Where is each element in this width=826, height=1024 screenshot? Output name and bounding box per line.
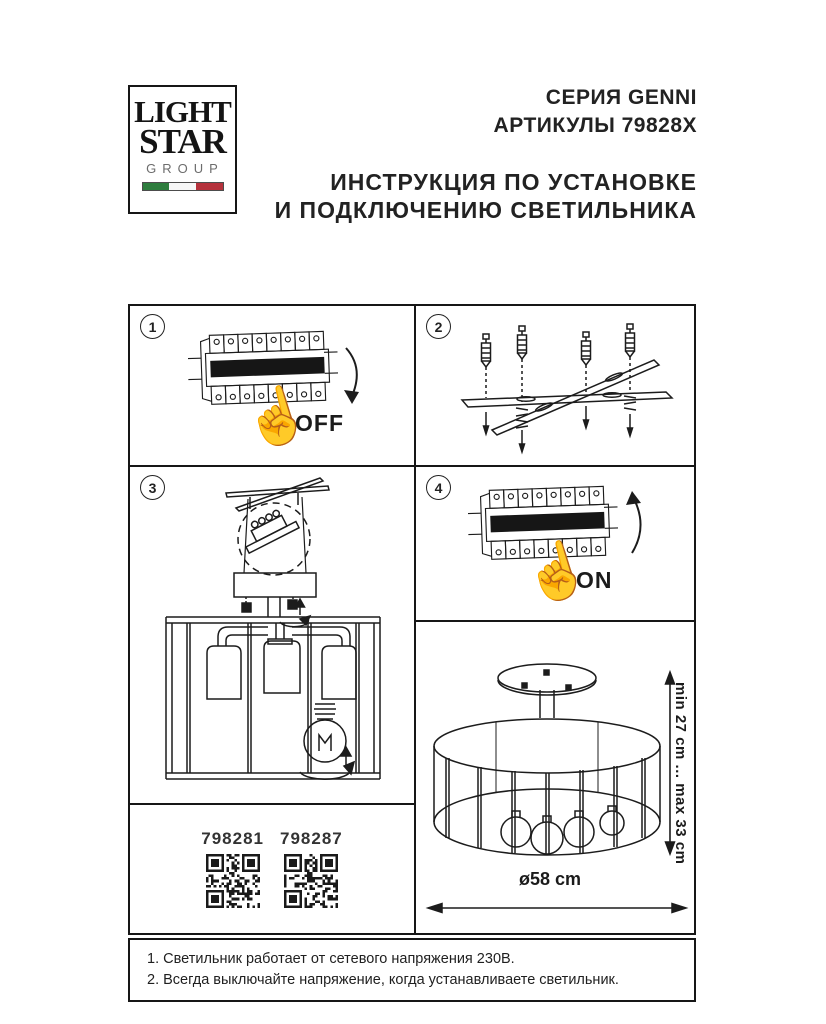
instruction-page: { "header": { "logo": { "word1": "LIGHT"… xyxy=(0,0,826,1024)
note-1: 1. Светильник работает от сетевого напря… xyxy=(147,949,694,970)
step2-panel: 2 xyxy=(416,306,694,465)
header-series-block: СЕРИЯ GENNI АРТИКУЛЫ 79828X xyxy=(494,84,697,140)
qr-item-right: 798287 xyxy=(280,829,343,908)
qr-code-right xyxy=(284,854,338,908)
breaker-on-illustration: ☝ xyxy=(416,467,694,620)
series-title: СЕРИЯ GENNI xyxy=(494,84,697,112)
page-title-line2: И ПОДКЛЮЧЕНИЮ СВЕТИЛЬНИКА xyxy=(275,196,697,224)
articles-title: АРТИКУЛЫ 79828X xyxy=(494,112,697,140)
page-title-line1: ИНСТРУКЦИЯ ПО УСТАНОВКЕ xyxy=(275,168,697,196)
logo-word-group: GROUP xyxy=(130,161,235,176)
on-label: ON xyxy=(576,567,613,594)
qr-panel: 798281 798287 xyxy=(130,805,414,933)
diameter-dimension-label: ø58 cm xyxy=(450,869,650,890)
note-2: 2. Всегда выключайте напряжение, когда у… xyxy=(147,970,694,991)
off-label: OFF xyxy=(295,410,344,437)
logo-word-star: STAR xyxy=(130,126,235,158)
qr-label-right: 798287 xyxy=(280,829,343,849)
step3-panel: 3 xyxy=(130,467,414,803)
italian-flag-bar xyxy=(142,182,224,191)
lightstar-logo: LIGHT STAR GROUP xyxy=(128,85,237,214)
step1-panel: 1 ☝ OFF xyxy=(130,306,414,465)
qr-label-left: 798281 xyxy=(201,829,264,849)
footer-notes: 1. Светильник работает от сетевого напря… xyxy=(128,938,696,1002)
assembly-illustration xyxy=(130,467,414,803)
instruction-grid: 1 ☝ OFF 2 xyxy=(128,304,696,935)
mounting-brackets-illustration xyxy=(416,306,694,465)
qr-code-left xyxy=(206,854,260,908)
page-title: ИНСТРУКЦИЯ ПО УСТАНОВКЕ И ПОДКЛЮЧЕНИЮ СВ… xyxy=(275,168,697,224)
qr-item-left: 798281 xyxy=(201,829,264,908)
breaker-off-illustration: ☝ xyxy=(130,306,414,465)
step4-panel: 4 ☝ ON xyxy=(416,467,694,620)
dimensions-panel: min 27 cm ... max 33 cm ø58 cm xyxy=(416,622,694,933)
height-dimension-label: min 27 cm ... max 33 cm xyxy=(672,682,689,852)
